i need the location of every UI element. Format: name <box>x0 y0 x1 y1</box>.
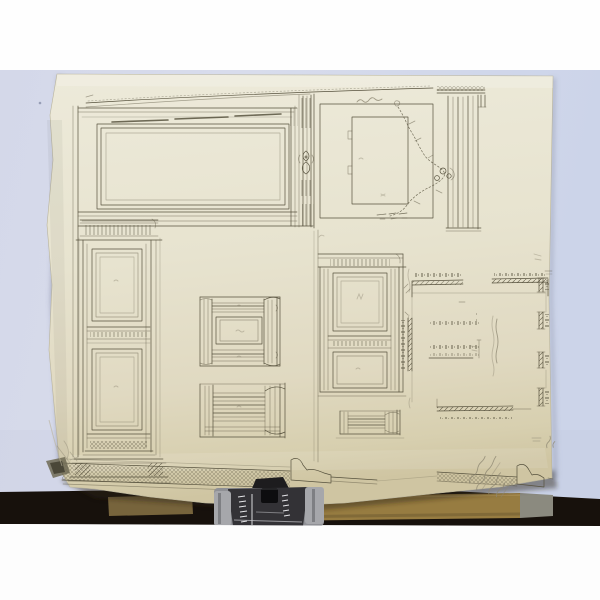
clip-slider-knob <box>261 488 278 503</box>
plan-wall-left <box>401 312 412 371</box>
photo-canvas <box>0 0 600 600</box>
mat-bottom <box>0 524 600 600</box>
photo-of-architectural-drawing <box>0 0 600 600</box>
clip-knob-left <box>214 491 231 526</box>
backdrop-speck <box>39 102 42 105</box>
mat-top <box>0 0 600 71</box>
